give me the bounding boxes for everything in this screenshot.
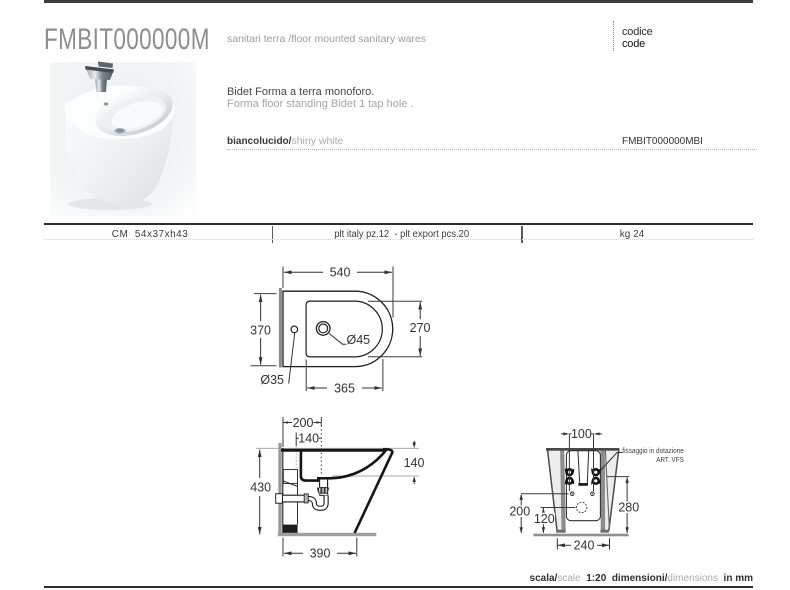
svg-text:Ø45: Ø45 [347, 333, 371, 347]
svg-text:100: 100 [571, 427, 592, 441]
svg-text:200: 200 [293, 416, 314, 430]
svg-text:fissaggio in dotazione: fissaggio in dotazione [622, 446, 684, 455]
svg-text:280: 280 [618, 501, 639, 515]
svg-text:240: 240 [574, 539, 595, 553]
svg-text:Ø35: Ø35 [260, 373, 284, 387]
svg-text:200: 200 [509, 505, 530, 519]
svg-text:365: 365 [334, 381, 355, 395]
svg-text:140: 140 [404, 456, 425, 470]
svg-text:120: 120 [534, 512, 555, 526]
svg-text:540: 540 [330, 266, 351, 280]
svg-text:430: 430 [250, 480, 271, 494]
svg-text:390: 390 [310, 547, 331, 561]
svg-text:370: 370 [250, 323, 271, 337]
svg-text:ART. VFS: ART. VFS [656, 455, 684, 464]
svg-text:140: 140 [298, 432, 319, 446]
svg-text:270: 270 [410, 321, 431, 335]
